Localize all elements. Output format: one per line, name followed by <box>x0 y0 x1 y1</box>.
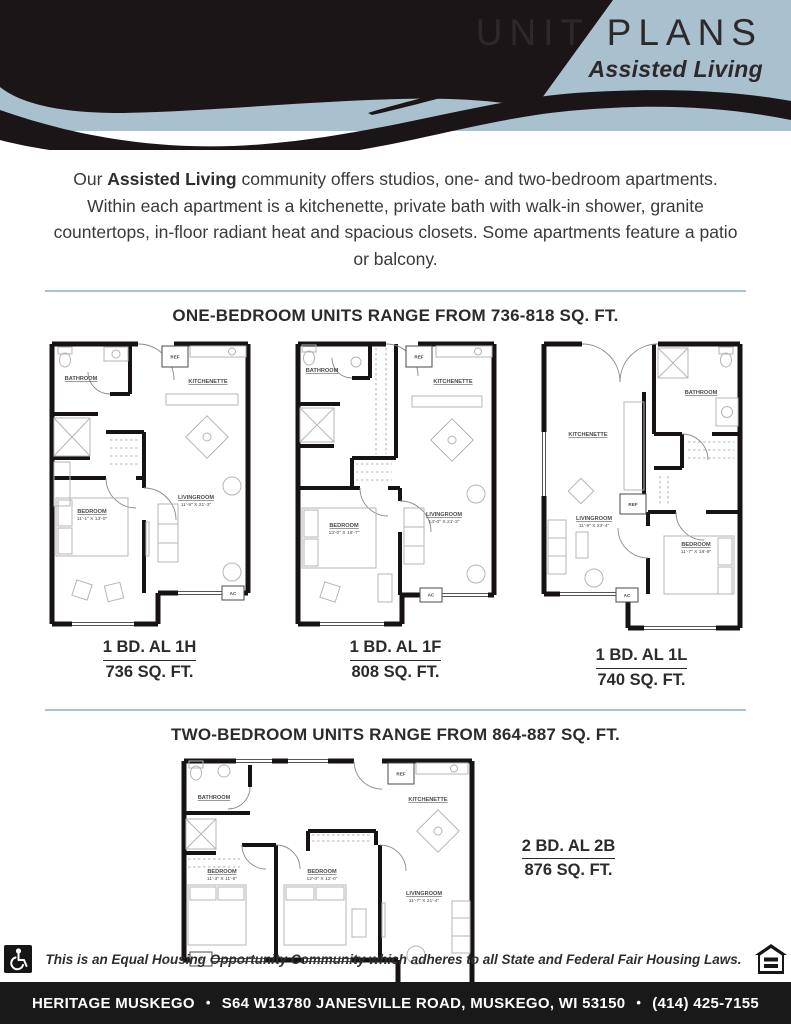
plan-area: 808 SQ. FT. <box>351 663 439 681</box>
ac-label: AC <box>623 593 630 598</box>
room-dims: 14'-0" X 21'-3" <box>428 519 459 525</box>
footer-phone: (414) 425-7155 <box>652 995 759 1012</box>
intro-lead: Our <box>73 169 107 189</box>
intro-paragraph: Our Assisted Living community offers stu… <box>52 166 739 272</box>
room-dims: 11'-9" X 23'-4" <box>578 523 609 529</box>
ref-label: REF <box>628 502 637 507</box>
plan-name: 2 BD. AL 2B <box>522 835 616 859</box>
equal-housing-icon <box>755 944 787 974</box>
ref-label: REF <box>414 355 423 360</box>
floor-plan-al1h: BATHROOM KITCHENETTE REF BEDROOM 11'-1" … <box>44 336 256 628</box>
room-label: KITCHENETTE <box>188 379 227 385</box>
room-label: LIVINGROOM <box>177 495 213 501</box>
room-label: BATHROOM <box>305 368 338 374</box>
plan-name: 1 BD. AL 1L <box>596 644 688 668</box>
furniture <box>186 761 470 964</box>
room-label: BEDROOM <box>307 869 337 875</box>
plan-name: 1 BD. AL 1H <box>103 636 197 660</box>
footer-community-name: HERITAGE MUSKEGO <box>32 995 195 1012</box>
room-dims: 11'-3" X 11'-9" <box>207 876 237 882</box>
room-labels: BATHROOM KITCHENETTE REF BEDROOM 13'-0" … <box>305 355 472 598</box>
two-bedroom-heading: TWO-BEDROOM UNITS RANGE FROM 864-887 SQ.… <box>0 725 791 745</box>
room-dims: 11'-7" X 18'-9" <box>680 549 711 555</box>
interior-walls <box>644 344 740 594</box>
room-dims: 11'-1" X 13'-0" <box>76 516 107 522</box>
plan-al1f: BATHROOM KITCHENETTE REF BEDROOM 13'-0" … <box>290 336 502 683</box>
equal-housing-disclaimer: This is an Equal Housing Opportunity Com… <box>0 944 791 974</box>
plan-area: 736 SQ. FT. <box>105 663 193 681</box>
room-label: BATHROOM <box>197 795 230 801</box>
room-label: KITCHENETTE <box>433 379 472 385</box>
room-labels: BATHROOM KITCHENETTE REF BEDROOM 11'-1" … <box>64 355 236 597</box>
intro-highlight: Assisted Living <box>107 169 236 189</box>
footer-bullet: • <box>636 995 641 1010</box>
footer-address: S64 W13780 JANESVILLE ROAD, MUSKEGO, WI … <box>222 995 626 1012</box>
plan-caption-al2b: 2 BD. AL 2B 876 SQ. FT. <box>522 835 616 882</box>
room-dims: 12'-0" X 12'-0" <box>306 876 337 882</box>
ac-label: AC <box>229 591 236 596</box>
room-label: BEDROOM <box>207 869 237 875</box>
footer-bar: HERITAGE MUSKEGO • S64 W13780 JANESVILLE… <box>0 982 791 1024</box>
section-divider <box>45 290 746 292</box>
interior-walls <box>184 761 380 960</box>
header: UNIT PLANS Assisted Living <box>0 0 791 150</box>
room-dims: 11'-9" X 21'-3" <box>180 502 211 508</box>
ref-label: REF <box>396 771 405 776</box>
plan-area: 740 SQ. FT. <box>597 671 685 689</box>
one-bedroom-plans-row: BATHROOM KITCHENETTE REF BEDROOM 11'-1" … <box>0 336 791 691</box>
room-dims: 11'-7" X 21'-4" <box>408 898 439 904</box>
one-bedroom-heading: ONE-BEDROOM UNITS RANGE FROM 736-818 SQ.… <box>0 306 791 326</box>
room-label: BATHROOM <box>64 376 97 382</box>
doors <box>332 344 431 532</box>
plan-name: 1 BD. AL 1F <box>350 636 442 660</box>
title-block: UNIT PLANS Assisted Living <box>476 12 763 83</box>
room-label: BATHROOM <box>684 390 717 396</box>
plan-caption-al1f: 1 BD. AL 1F 808 SQ. FT. <box>350 636 442 683</box>
page-subtitle: Assisted Living <box>476 56 763 83</box>
section-divider-2 <box>45 709 746 711</box>
room-dims: 13'-0" X 16'-7" <box>328 530 359 536</box>
floor-plan-al1f: BATHROOM KITCHENETTE REF BEDROOM 13'-0" … <box>290 336 502 628</box>
outer-walls <box>52 344 248 624</box>
interior-walls <box>298 344 400 595</box>
flyer-page: UNIT PLANS Assisted Living Our Assisted … <box>0 0 791 1024</box>
room-label: BEDROOM <box>681 542 711 548</box>
ref-label: REF <box>170 355 179 360</box>
plan-area: 876 SQ. FT. <box>524 861 612 879</box>
room-label: KITCHENETTE <box>408 797 447 803</box>
disclaimer-text: This is an Equal Housing Opportunity Com… <box>45 952 741 967</box>
room-label: BEDROOM <box>77 509 107 515</box>
room-label: LIVINGROOM <box>425 512 461 518</box>
page-title: UNIT PLANS <box>476 12 763 54</box>
plan-caption-al1h: 1 BD. AL 1H 736 SQ. FT. <box>103 636 197 683</box>
footer-bullet: • <box>206 995 211 1010</box>
room-label: BEDROOM <box>329 523 359 529</box>
plan-al1l: BATHROOM KITCHENETTE REF LIVINGROOM 11'-… <box>536 336 748 691</box>
room-label: KITCHENETTE <box>568 432 607 438</box>
wheelchair-icon <box>4 945 32 973</box>
floor-plan-al1l: BATHROOM KITCHENETTE REF LIVINGROOM 11'-… <box>536 336 748 636</box>
room-label: LIVINGROOM <box>575 516 611 522</box>
ac-label: AC <box>427 593 434 598</box>
room-label: LIVINGROOM <box>406 891 442 897</box>
plan-al1h: BATHROOM KITCHENETTE REF BEDROOM 11'-1" … <box>44 336 256 683</box>
plan-caption-al1l: 1 BD. AL 1L 740 SQ. FT. <box>596 644 688 691</box>
